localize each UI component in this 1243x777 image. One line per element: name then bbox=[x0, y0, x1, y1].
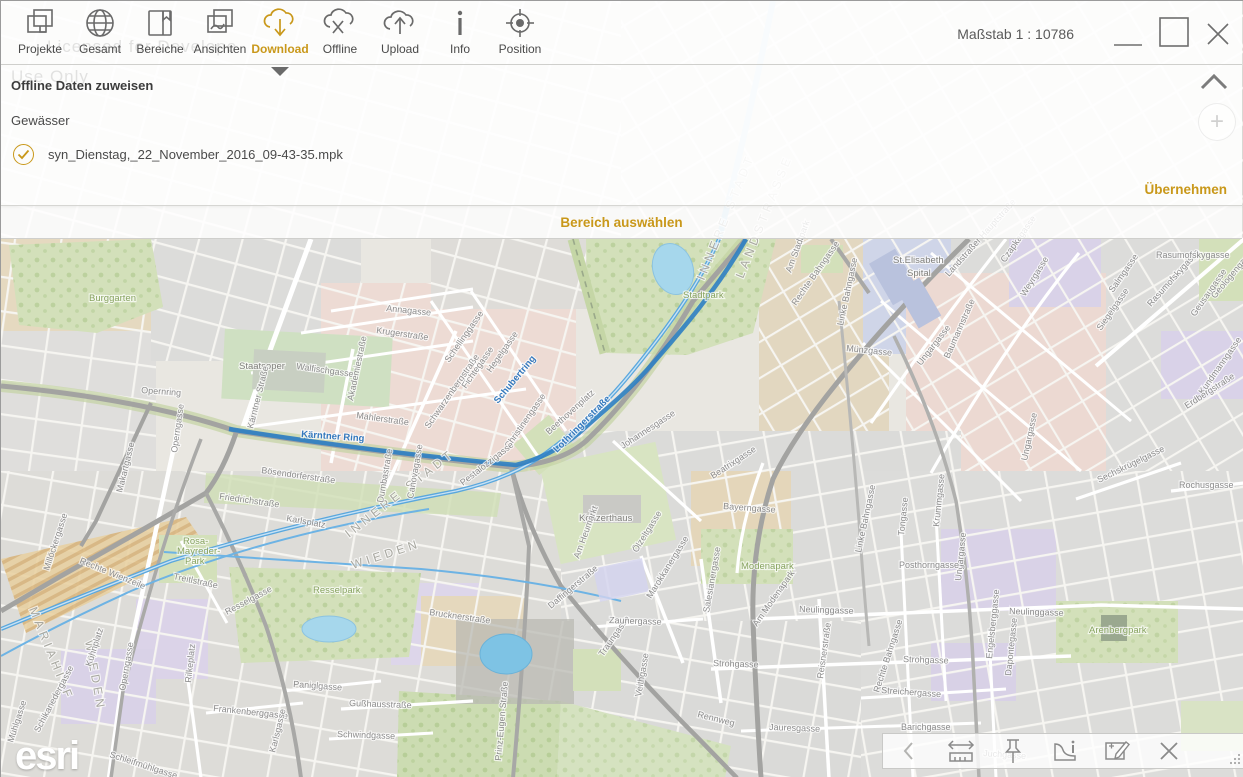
map-label: Schwindgasse bbox=[337, 729, 395, 741]
toolbar-item-upload[interactable]: Upload bbox=[370, 7, 430, 56]
toolbar-item-offline[interactable]: Offline bbox=[310, 7, 370, 56]
area-info-button[interactable] bbox=[1039, 738, 1091, 764]
check-circle-icon[interactable] bbox=[13, 144, 34, 165]
map-label: Jauresgasse bbox=[769, 722, 820, 734]
toolbar-item-download[interactable]: Download bbox=[250, 7, 310, 56]
map-label: Park bbox=[185, 556, 205, 567]
top-toolbar: Projekte Gesamt Bereiche bbox=[1, 1, 1242, 65]
globe-icon bbox=[83, 7, 117, 39]
map-label: Posthorngasse bbox=[899, 560, 959, 570]
panel-caret-icon bbox=[271, 67, 289, 76]
measure-button[interactable] bbox=[935, 738, 987, 764]
toolbar-label: Download bbox=[250, 42, 310, 56]
area-info-icon bbox=[1051, 738, 1079, 764]
toolbar-item-info[interactable]: Info bbox=[430, 7, 490, 56]
toolbar-label: Bereiche bbox=[130, 42, 190, 56]
minimize-button[interactable] bbox=[1112, 14, 1144, 53]
map-label: Neulinggasse bbox=[1009, 606, 1064, 618]
map-label: Spital bbox=[907, 268, 931, 279]
cloud-upload-icon bbox=[380, 7, 420, 39]
toolbar-label: Gesamt bbox=[70, 42, 130, 56]
pin-button[interactable] bbox=[987, 737, 1039, 765]
map-label: Rasumofskygasse bbox=[1156, 250, 1230, 260]
package-file-name: syn_Dienstag,_22_November_2016_09-43-35.… bbox=[48, 147, 343, 162]
map-label: Burggarten bbox=[89, 293, 136, 304]
map-label: St.Elisabeth bbox=[893, 255, 944, 266]
toolbar-item-ansichten[interactable]: Ansichten bbox=[190, 7, 250, 56]
toolbar-label: Info bbox=[430, 42, 490, 56]
map-label: Arenbergpark bbox=[1089, 625, 1147, 636]
layer-name: Gewässer bbox=[11, 113, 70, 128]
chevron-left-icon bbox=[898, 740, 920, 762]
map-label: Resselpark bbox=[313, 585, 361, 596]
toolbar-item-gesamt[interactable]: Gesamt bbox=[70, 7, 130, 56]
collapse-panel-button[interactable] bbox=[1199, 73, 1229, 96]
toolbar-label: Projekte bbox=[10, 42, 70, 56]
toolbar-label: Offline bbox=[310, 42, 370, 56]
map-label: Strohgasse bbox=[903, 654, 949, 666]
map-toolbar bbox=[882, 733, 1243, 769]
offline-data-panel: Offline Daten zuweisen Gewässer syn_Dien… bbox=[1, 65, 1242, 206]
map-label: Stadtpark bbox=[683, 290, 724, 301]
map-views-icon bbox=[203, 7, 237, 39]
cloud-download-icon bbox=[260, 7, 300, 39]
toolbar-label: Ansichten bbox=[190, 42, 250, 56]
add-button-ghost[interactable]: + bbox=[1198, 103, 1236, 141]
select-area-bar[interactable]: Bereich auswählen bbox=[1, 206, 1242, 239]
toolbar-label: Upload bbox=[370, 42, 430, 56]
close-toolbar-button[interactable] bbox=[1143, 739, 1195, 763]
window-controls bbox=[1112, 13, 1232, 53]
scale-label: Maßstab 1 : 10786 bbox=[957, 26, 1074, 42]
collapse-toolbar-button[interactable] bbox=[883, 740, 935, 762]
position-icon bbox=[503, 7, 537, 39]
map-label: Barichgasse bbox=[901, 722, 951, 732]
map-label: Zaunergasse bbox=[609, 615, 662, 627]
measure-icon bbox=[946, 738, 976, 764]
apply-button[interactable]: Übernehmen bbox=[1144, 182, 1227, 197]
map-label: Strohgasse bbox=[713, 658, 759, 670]
info-icon bbox=[443, 7, 477, 39]
esri-logo: esri bbox=[15, 734, 78, 777]
edit-area-icon bbox=[1103, 738, 1131, 764]
cloud-offline-icon bbox=[320, 7, 360, 39]
pin-icon bbox=[1003, 737, 1023, 765]
panel-title: Offline Daten zuweisen bbox=[11, 78, 153, 93]
resize-grip[interactable] bbox=[1229, 753, 1241, 765]
close-icon bbox=[1157, 739, 1181, 763]
select-area-label: Bereich auswählen bbox=[560, 215, 682, 230]
toolbar-item-position[interactable]: Position bbox=[490, 7, 550, 56]
book-bookmark-icon bbox=[143, 7, 177, 39]
maximize-button[interactable] bbox=[1158, 14, 1190, 53]
toolbar-label: Position bbox=[490, 42, 550, 56]
edit-area-button[interactable] bbox=[1091, 738, 1143, 764]
projects-icon bbox=[23, 7, 57, 39]
map-label: Rochusgasse bbox=[1179, 480, 1234, 490]
close-button[interactable] bbox=[1204, 14, 1232, 53]
map-label: Neulinggasse bbox=[799, 604, 854, 616]
toolbar-item-projekte[interactable]: Projekte bbox=[10, 7, 70, 56]
package-file-row[interactable]: syn_Dienstag,_22_November_2016_09-43-35.… bbox=[13, 144, 343, 165]
toolbar-item-bereiche[interactable]: Bereiche bbox=[130, 7, 190, 56]
